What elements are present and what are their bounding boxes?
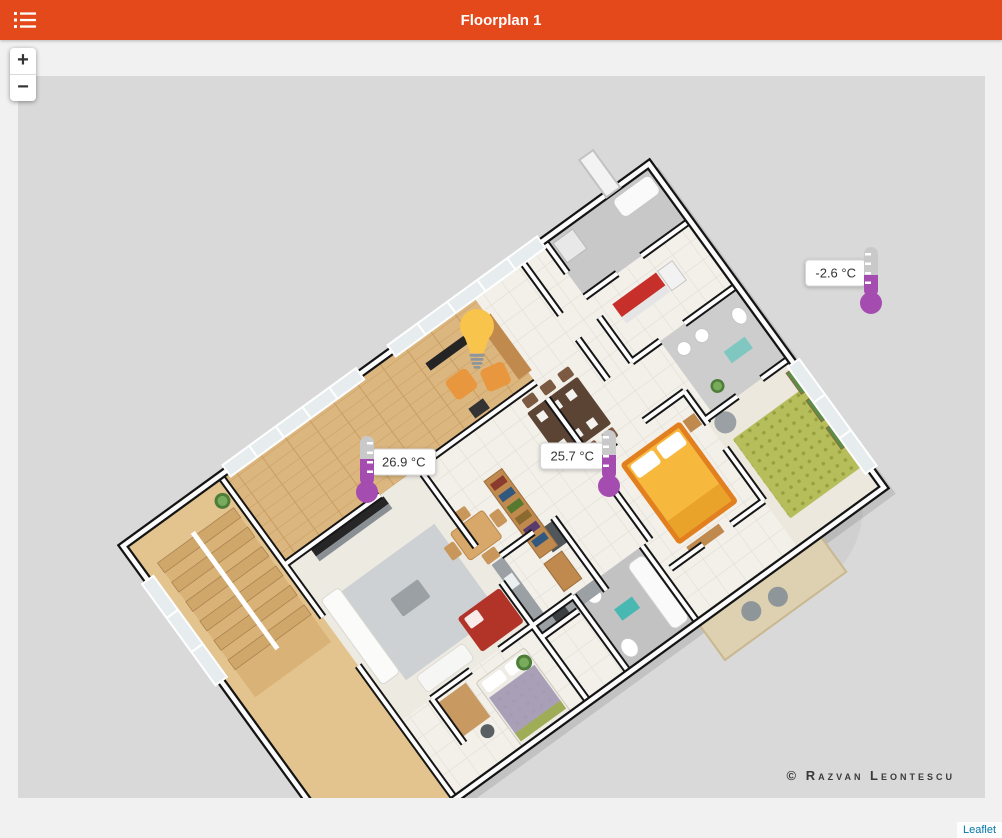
thermometer-bulb <box>598 475 620 497</box>
thermometer-marker-dining[interactable]: 26.9 °C <box>360 436 374 502</box>
light-marker-hall[interactable] <box>458 308 496 370</box>
thermometer-bulb <box>356 481 378 503</box>
thermometer-ticks <box>367 442 373 476</box>
thermometer-icon <box>360 436 374 502</box>
map-container[interactable]: © Razvan Leontescu -2.6 °C 26.9 °C <box>0 40 1002 838</box>
thermometer-marker-bedroom[interactable]: 25.7 °C <box>602 430 616 496</box>
thermometer-marker-outdoor[interactable]: -2.6 °C <box>864 247 878 313</box>
light-bulb-icon <box>458 308 496 370</box>
thermometer-ticks <box>603 436 609 470</box>
temperature-label: -2.6 °C <box>805 260 866 287</box>
thermometer-icon <box>602 430 616 496</box>
leaflet-attribution-link[interactable]: Leaflet <box>963 824 996 836</box>
list-menu-icon <box>13 9 37 31</box>
zoom-in-button[interactable]: + <box>10 48 36 75</box>
map-attribution: Leaflet <box>957 822 1002 838</box>
app-header: Floorplan 1 <box>0 0 1002 40</box>
temperature-label: 26.9 °C <box>372 449 436 476</box>
floorplan-render <box>18 76 985 798</box>
floorplan-image[interactable]: © Razvan Leontescu -2.6 °C 26.9 °C <box>18 76 985 798</box>
menu-icon[interactable] <box>13 9 37 31</box>
thermometer-ticks <box>865 253 871 287</box>
zoom-out-button[interactable]: − <box>10 75 36 101</box>
image-credit-watermark: © Razvan Leontescu <box>787 768 955 783</box>
thermometer-icon <box>864 247 878 313</box>
temperature-label: 25.7 °C <box>540 443 604 470</box>
zoom-control: + − <box>10 48 36 101</box>
page-title: Floorplan 1 <box>461 12 542 29</box>
thermometer-bulb <box>860 292 882 314</box>
